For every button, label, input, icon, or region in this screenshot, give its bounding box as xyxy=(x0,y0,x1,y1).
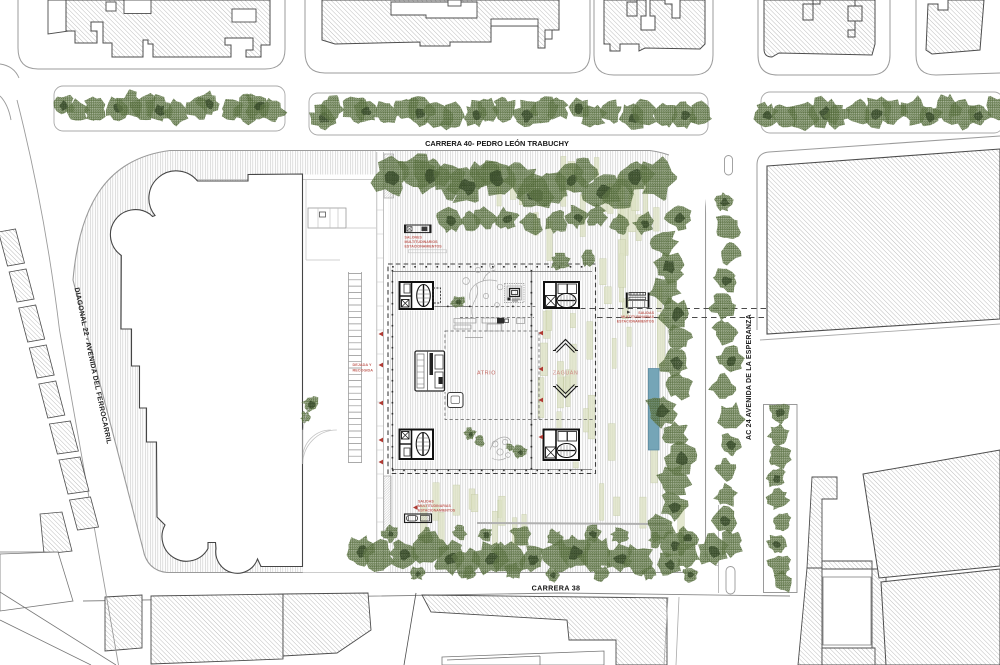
svg-text:DEJADA Y: DEJADA Y xyxy=(353,363,372,367)
svg-text:SALIDAS: SALIDAS xyxy=(638,311,654,315)
svg-text:MULTITUDINARIAS: MULTITUDINARIAS xyxy=(418,504,451,508)
svg-text:MULTITUDINARIAS: MULTITUDINARIAS xyxy=(621,315,654,319)
svg-text:SALIDAS: SALIDAS xyxy=(418,500,434,504)
svg-text:ESTACIONAMIENTOS: ESTACIONAMIENTOS xyxy=(418,508,456,512)
svg-text:ZAGUÁN: ZAGUÁN xyxy=(553,370,578,377)
svg-text:ESTACIONAMIENTOS: ESTACIONAMIENTOS xyxy=(405,244,443,248)
svg-text:ATRIO: ATRIO xyxy=(477,371,496,377)
svg-text:MULTITUDINARIOS: MULTITUDINARIOS xyxy=(405,240,439,244)
svg-text:AC 24 AVENIDA DE LA ESPERANZA: AC 24 AVENIDA DE LA ESPERANZA xyxy=(746,314,753,440)
svg-text:ESTACIONAMIENTOS: ESTACIONAMIENTOS xyxy=(617,320,655,324)
svg-text:RECOGIDA: RECOGIDA xyxy=(353,369,374,373)
svg-text:CARRERA 38: CARRERA 38 xyxy=(532,584,581,593)
svg-text:SALONES: SALONES xyxy=(405,236,423,240)
svg-text:CARRERA 40- PEDRO LEÓN TRABUCH: CARRERA 40- PEDRO LEÓN TRABUCHY xyxy=(425,139,569,148)
